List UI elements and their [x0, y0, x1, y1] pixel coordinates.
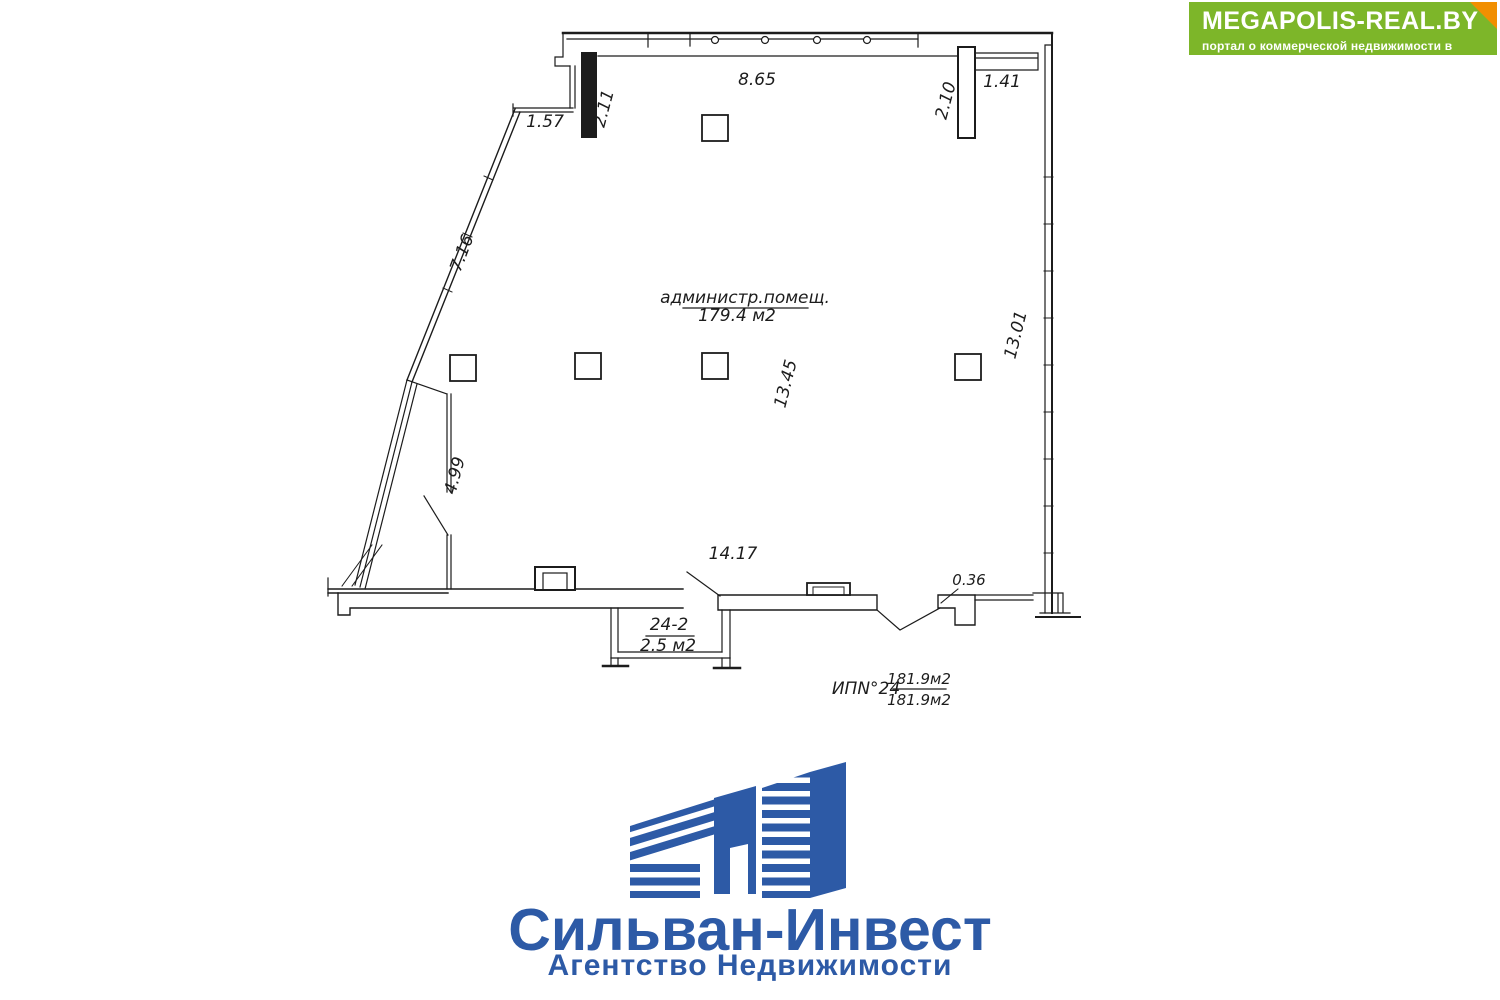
wall-1-41-band: [975, 53, 1038, 70]
agency-logo-subtitle: Агентство Недвижимости: [0, 949, 1500, 983]
dim-bottom-ledge: 0.36: [952, 571, 985, 589]
dim-top-window: 8.65: [738, 70, 776, 90]
room-area-label: 179.4 м2: [698, 306, 776, 326]
dim-top-left-segment: 1.57: [526, 112, 564, 132]
leader-0-36: [941, 589, 958, 603]
vestibule-feet-bars: [603, 666, 740, 668]
pier-right-2-10: [958, 47, 975, 138]
door-frame-outer: [535, 567, 575, 590]
floor-plan-labels: 8.65 1.41 1.57 2.11 2.10 7.16 4.99 13.45…: [441, 70, 1032, 709]
dim-bottom-width: 14.17: [709, 544, 758, 564]
wall-ledge-0-36: [938, 595, 975, 625]
dim-right-wall: 13.01: [1001, 309, 1032, 361]
column: [702, 115, 728, 141]
wall-bottom-right-band: [718, 595, 877, 610]
megapolis-banner: MEGAPOLIS-REAL.BY портал о коммерческой …: [1189, 2, 1497, 55]
wall-bottom-top-line: [328, 589, 683, 593]
wall-diagonal-lower: [355, 380, 417, 589]
window-band-ticks: [648, 33, 918, 47]
door-swing-double: [877, 608, 940, 630]
wall-right-inner: [1045, 45, 1052, 613]
column: [450, 355, 476, 381]
vestibule-area-label: 2.5 м2: [640, 636, 696, 656]
door-swing-entrance: [687, 572, 720, 596]
total-area-bottom: 181.9м2: [887, 691, 951, 709]
diagonal-ticks: [443, 176, 493, 292]
dim-right-pier: 2.10: [932, 80, 961, 122]
wall-partition-lower: [447, 535, 451, 589]
door-swing-partition: [424, 496, 448, 535]
vestibule-left-wall: [611, 608, 618, 658]
wall-bottom-step: [338, 593, 683, 615]
icon-tower-stripes: [762, 772, 810, 898]
buildings-icon: [630, 762, 846, 898]
wall-topleft-double: [570, 66, 575, 108]
floor-plan-drawing: 8.65 1.41 1.57 2.11 2.10 7.16 4.99 13.45…: [0, 0, 1500, 1000]
icon-lower-left-stripes: [630, 864, 700, 898]
wall-partition-top-link: [407, 380, 447, 394]
floor-plan-walls: [328, 33, 1080, 689]
banner-subtitle: портал о коммерческой недвижимости в Бел…: [1202, 39, 1497, 67]
dim-hall-depth: 13.45: [771, 358, 802, 410]
window-mullion-circles: [712, 37, 871, 44]
icon-tower-solid-face: [810, 762, 846, 898]
wall-bottom-thin: [975, 595, 1033, 600]
room-name-label: администр.помещ.: [660, 288, 830, 308]
total-area-top: 181.9м2: [887, 670, 951, 688]
dim-diagonal-wall: 7.16: [446, 232, 478, 275]
dim-partition-wall: 4.99: [441, 455, 470, 497]
column: [575, 353, 601, 379]
banner-title: MEGAPOLIS-REAL.BY: [1202, 7, 1479, 36]
icon-roof-stripes: [630, 797, 722, 861]
vestibule-number-label: 24-2: [650, 615, 689, 635]
page: 8.65 1.41 1.57 2.11 2.10 7.16 4.99 13.45…: [0, 0, 1500, 1000]
columns: [450, 115, 981, 381]
icon-center-door-notch: [730, 844, 748, 894]
column: [955, 354, 981, 380]
vestibule-right-wall: [722, 610, 730, 658]
dim-top-right-extension: 1.41: [983, 72, 1021, 92]
column: [702, 353, 728, 379]
wall-topleft-edge: [555, 33, 570, 66]
